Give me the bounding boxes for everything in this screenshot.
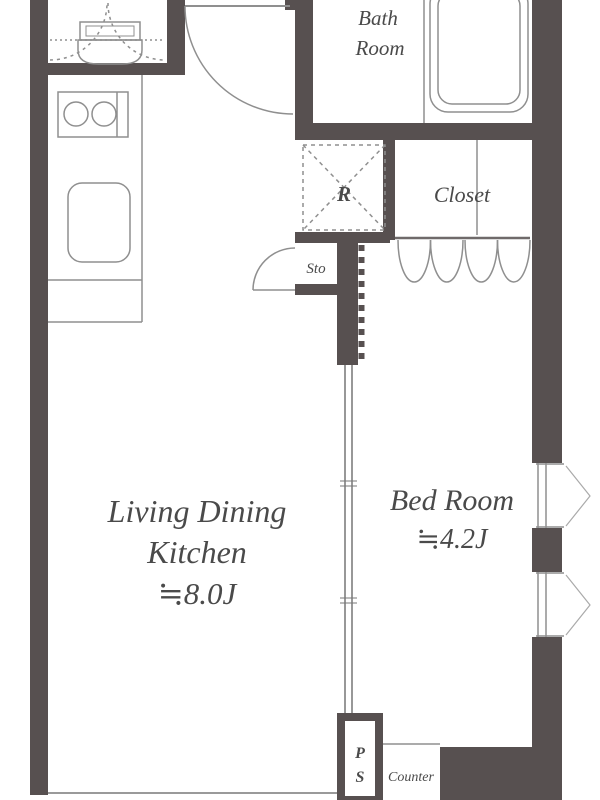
toilet-room [50,3,165,64]
wall-toilet-bottom [30,63,185,75]
ldk-label-line1: Living Dining [107,493,287,529]
storage-door [253,248,295,290]
closet [395,140,530,282]
wall-above-storage [295,232,390,243]
bathtub-outer [430,0,528,112]
ldk-label-line2: Kitchen [146,534,247,570]
wall-bathroom-left [295,0,313,140]
toilet-tank-inner [86,26,134,36]
sliding-door-ticks [340,481,357,603]
pipe-space-label-s: S [356,769,365,786]
wall-toilet-right [167,0,185,75]
bedroom-size-label: ≒4.2J [417,524,489,555]
window-gap-bottom [530,572,564,637]
bedroom-label: Bed Room [390,484,514,517]
wall-right-top [532,0,562,463]
sliding-door [340,365,357,713]
floor-plan: Bath Room R Closet Sto Living Dining Kit… [0,0,600,800]
closet-folding-doors [398,240,530,282]
stove-burner-right [92,102,116,126]
wall-storage-bottom [295,284,337,295]
floor-plan-page: Bath Room R Closet Sto Living Dining Kit… [0,0,600,800]
closet-label: Closet [434,182,491,207]
stove-burner-left [64,102,88,126]
bathroom-label-line1: Bath [358,6,398,30]
storage-door-swing-arc [253,248,295,290]
toilet-door-arc-right [108,3,165,60]
wall-bathroom-closet-divider [295,123,562,140]
counter-label: Counter [388,770,434,785]
toilet-tank [80,22,140,40]
wall-bottom-right-mass [440,747,540,800]
walls [30,0,562,800]
window-gap-top [530,463,564,528]
refrigerator-label: R [336,182,351,206]
hall-door-swing-arc [185,6,293,114]
toilet-bowl [78,40,142,64]
pipe-space-label-p: P [354,745,365,762]
bathtub-inner [438,0,520,104]
ldk-size-label: ≒8.0J [158,576,238,611]
closet-door-arc [398,240,431,282]
wall-right-between-windows [532,528,562,572]
hall-door [185,6,293,114]
closet-door-arc [465,240,498,282]
kitchen [48,75,142,322]
closet-door-arc [498,240,531,282]
bathroom-label-line2: Room [355,36,405,60]
wall-left-outer [30,0,48,795]
window-top-casement-mark [566,466,590,526]
storage-label: Sto [306,261,326,277]
wall-bedroom-partition [337,243,358,365]
closet-door-arc [431,240,464,282]
kitchen-sink [68,183,130,262]
bathroom [424,0,528,123]
window-bottom-casement-mark [566,575,590,635]
